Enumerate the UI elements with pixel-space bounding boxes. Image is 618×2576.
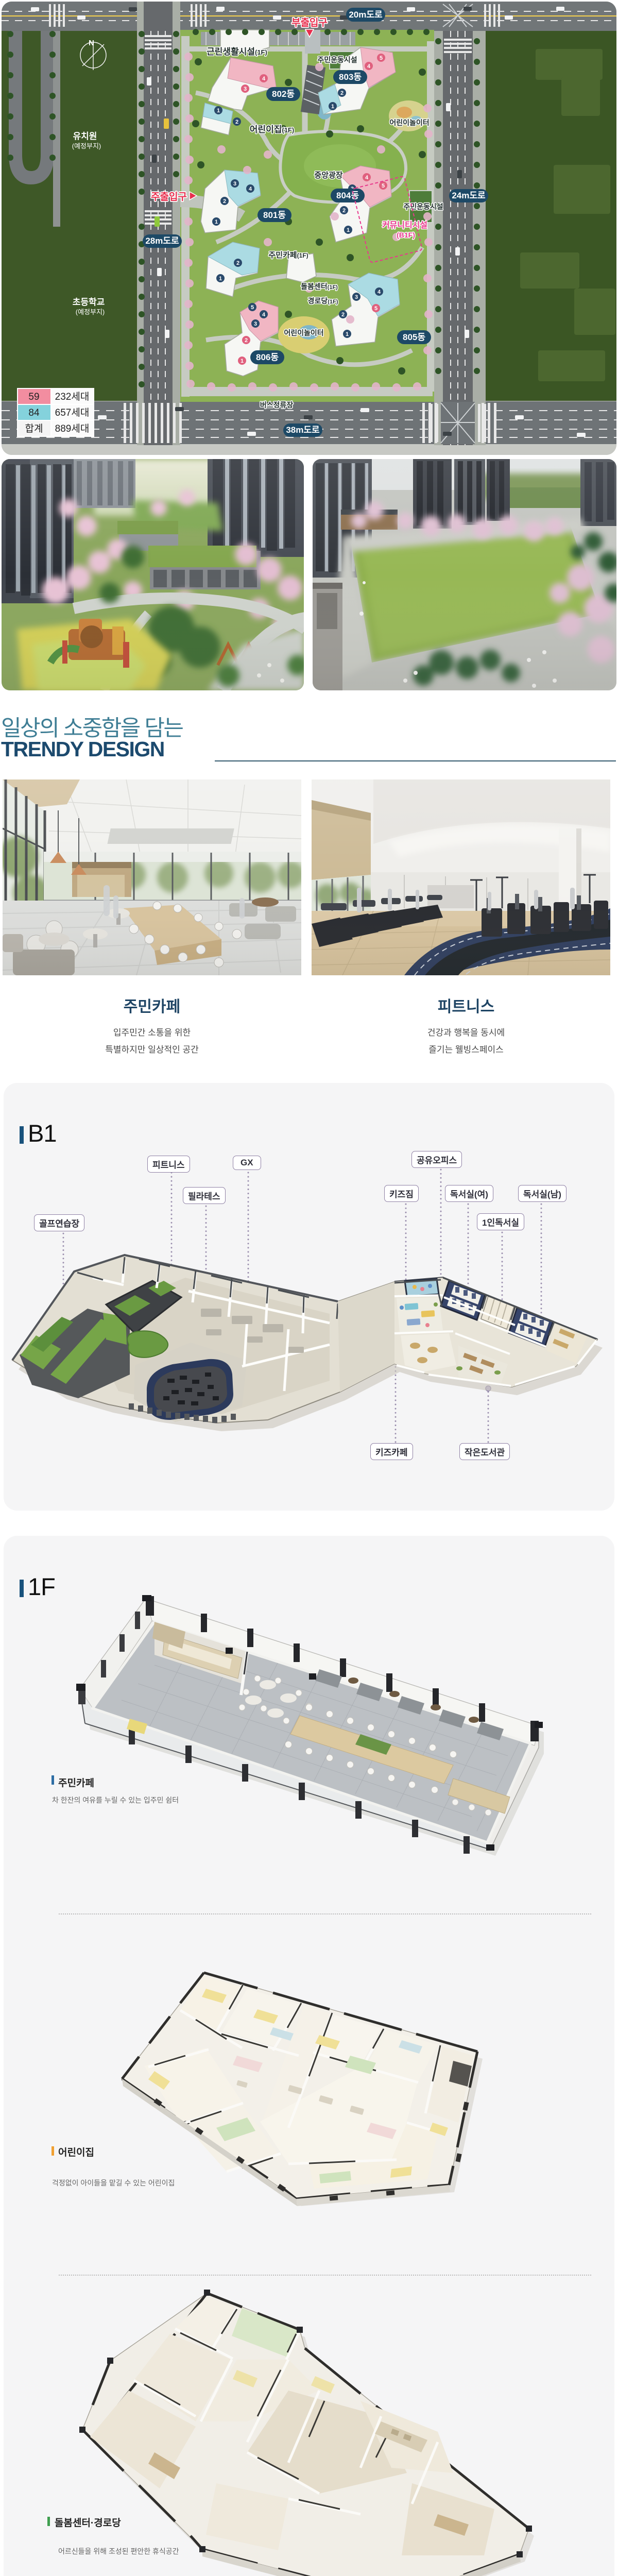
svg-text:버스정류장: 버스정류장: [260, 401, 294, 409]
svg-text:부출입구: 부출입구: [291, 17, 328, 28]
svg-text:(B1F): (B1F): [397, 231, 415, 239]
svg-text:84: 84: [28, 408, 40, 418]
svg-text:4: 4: [377, 289, 381, 295]
svg-text:2: 2: [223, 198, 226, 205]
svg-text:어린이놀이터: 어린이놀이터: [389, 118, 429, 127]
svg-text:1: 1: [331, 104, 334, 110]
svg-text:3: 3: [355, 294, 358, 300]
svg-text:1: 1: [346, 331, 349, 337]
svg-text:5: 5: [374, 306, 377, 312]
svg-text:주민카페(1F): 주민카페(1F): [268, 251, 308, 260]
svg-text:806동: 806동: [256, 352, 279, 362]
svg-text:(예정부지): (예정부지): [72, 142, 101, 150]
svg-text:2: 2: [340, 90, 344, 96]
svg-text:5: 5: [380, 55, 383, 61]
svg-text:3: 3: [254, 321, 257, 327]
svg-text:59: 59: [28, 392, 39, 402]
svg-text:1: 1: [215, 219, 218, 225]
svg-text:804동: 804동: [336, 191, 359, 200]
svg-text:N: N: [89, 39, 94, 47]
svg-text:1: 1: [217, 108, 220, 114]
svg-text:어린이놀이터: 어린이놀이터: [284, 329, 323, 337]
svg-text:2: 2: [341, 312, 345, 318]
svg-text:803동: 803동: [339, 72, 362, 82]
svg-text:5: 5: [251, 304, 254, 311]
svg-text:805동: 805동: [403, 332, 425, 342]
svg-text:4: 4: [367, 63, 371, 70]
svg-text:38m도로: 38m도로: [286, 425, 320, 435]
svg-text:유치원: 유치원: [73, 131, 97, 141]
svg-text:4: 4: [262, 312, 266, 318]
svg-text:4: 4: [262, 76, 266, 82]
svg-text:2: 2: [235, 119, 238, 125]
svg-text:1: 1: [347, 227, 350, 233]
svg-text:657세대: 657세대: [55, 407, 90, 418]
svg-text:1: 1: [241, 358, 244, 364]
svg-text:24m도로: 24m도로: [452, 191, 486, 200]
svg-text:889세대: 889세대: [55, 423, 90, 434]
svg-text:20m도로: 20m도로: [349, 10, 383, 20]
svg-text:801동: 801동: [263, 210, 286, 220]
svg-text:5: 5: [382, 183, 385, 189]
svg-text:4: 4: [365, 175, 369, 181]
svg-text:초등학교: 초등학교: [73, 297, 105, 307]
svg-text:3: 3: [233, 181, 236, 187]
svg-text:4: 4: [249, 186, 252, 192]
svg-text:28m도로: 28m도로: [145, 236, 179, 246]
svg-text:중앙광장: 중앙광장: [314, 171, 342, 180]
svg-text:232세대: 232세대: [55, 391, 90, 402]
svg-text:2: 2: [236, 260, 239, 266]
svg-text:주민운동시설: 주민운동시설: [317, 56, 357, 64]
svg-text:합계: 합계: [25, 423, 43, 434]
svg-text:주민운동시설: 주민운동시설: [403, 202, 443, 211]
svg-text:3: 3: [244, 86, 247, 92]
svg-text:(예정부지): (예정부지): [76, 308, 105, 316]
svg-text:802동: 802동: [272, 89, 295, 99]
svg-text:주출입구: 주출입구: [151, 191, 187, 202]
svg-text:커뮤니티시설: 커뮤니티시설: [382, 221, 427, 230]
svg-text:2: 2: [342, 208, 346, 214]
svg-text:2: 2: [245, 337, 248, 344]
svg-text:어린이집(1F): 어린이집(1F): [250, 125, 294, 134]
svg-text:1: 1: [219, 276, 222, 282]
